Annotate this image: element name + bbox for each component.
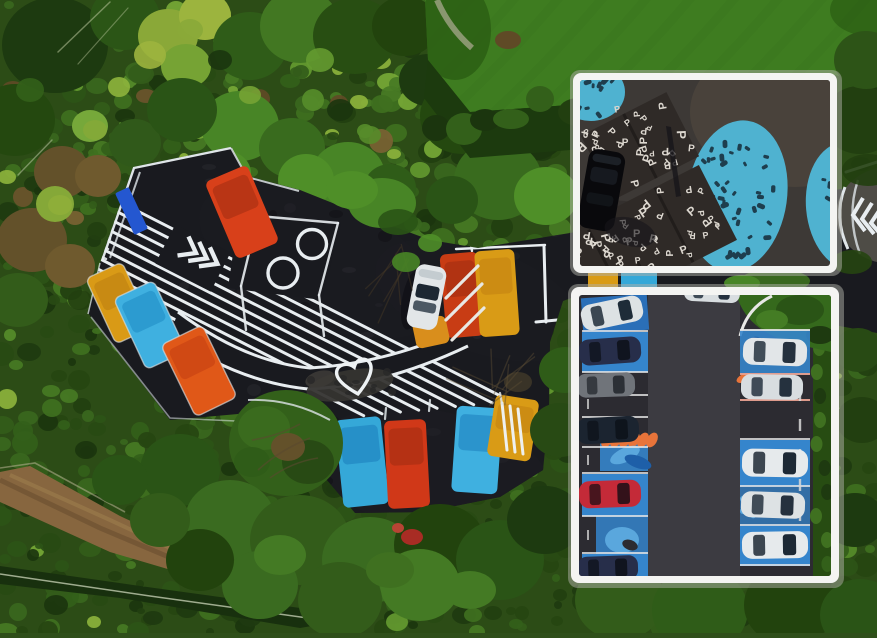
svg-text:P: P [634, 148, 647, 157]
svg-text:P: P [674, 130, 689, 140]
svg-text:P: P [665, 250, 676, 257]
svg-text:P: P [622, 138, 629, 149]
svg-text:P: P [696, 210, 706, 217]
svg-text:P: P [664, 159, 671, 170]
svg-text:P: P [638, 137, 650, 144]
svg-text:P: P [690, 231, 696, 241]
svg-text:P: P [662, 145, 670, 157]
